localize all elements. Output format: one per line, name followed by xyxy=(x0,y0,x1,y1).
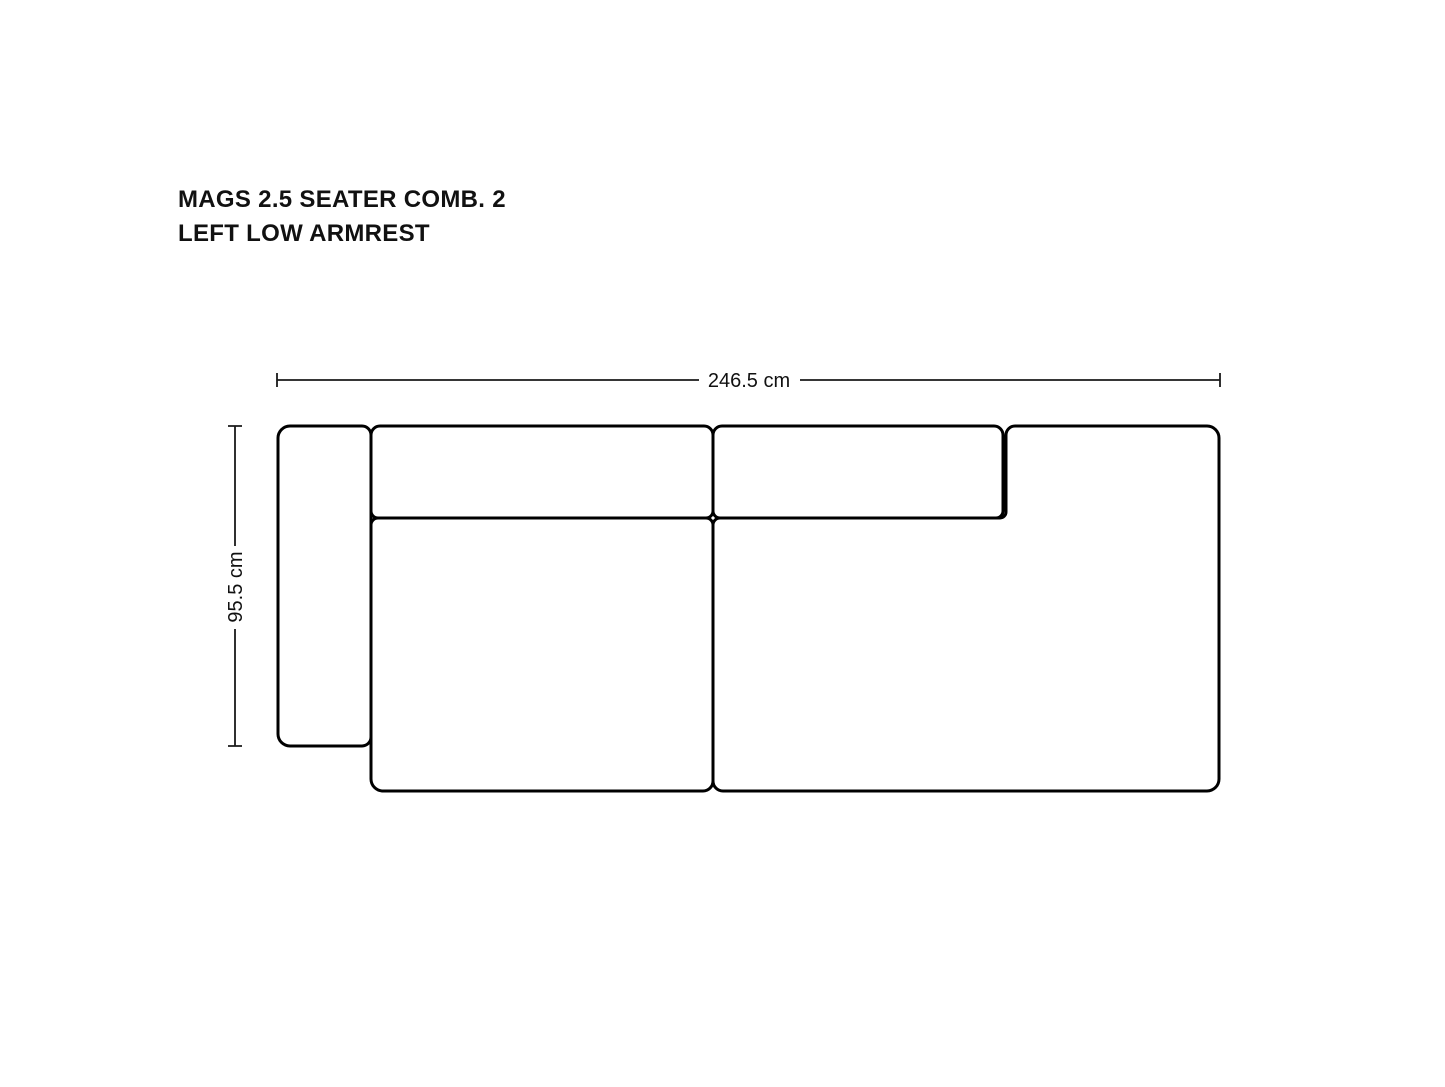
diagram-page: MAGS 2.5 SEATER COMB. 2 LEFT LOW ARMREST… xyxy=(0,0,1445,1087)
width-dimension-label: 246.5 cm xyxy=(708,370,790,392)
depth-dimension-label: 95.5 cm xyxy=(225,551,247,622)
left-backrest-cushion-outline xyxy=(371,426,713,518)
sofa-outline xyxy=(278,426,1219,791)
width-dimension: 246.5 cm xyxy=(277,370,1220,392)
left-seat-module-outline xyxy=(371,518,713,791)
depth-dimension: 95.5 cm xyxy=(225,426,247,746)
sofa-plan-diagram: 246.5 cm 95.5 cm xyxy=(0,0,1445,1087)
left-low-armrest-outline xyxy=(278,426,371,746)
right-backrest-cushion-outline xyxy=(713,426,1003,518)
